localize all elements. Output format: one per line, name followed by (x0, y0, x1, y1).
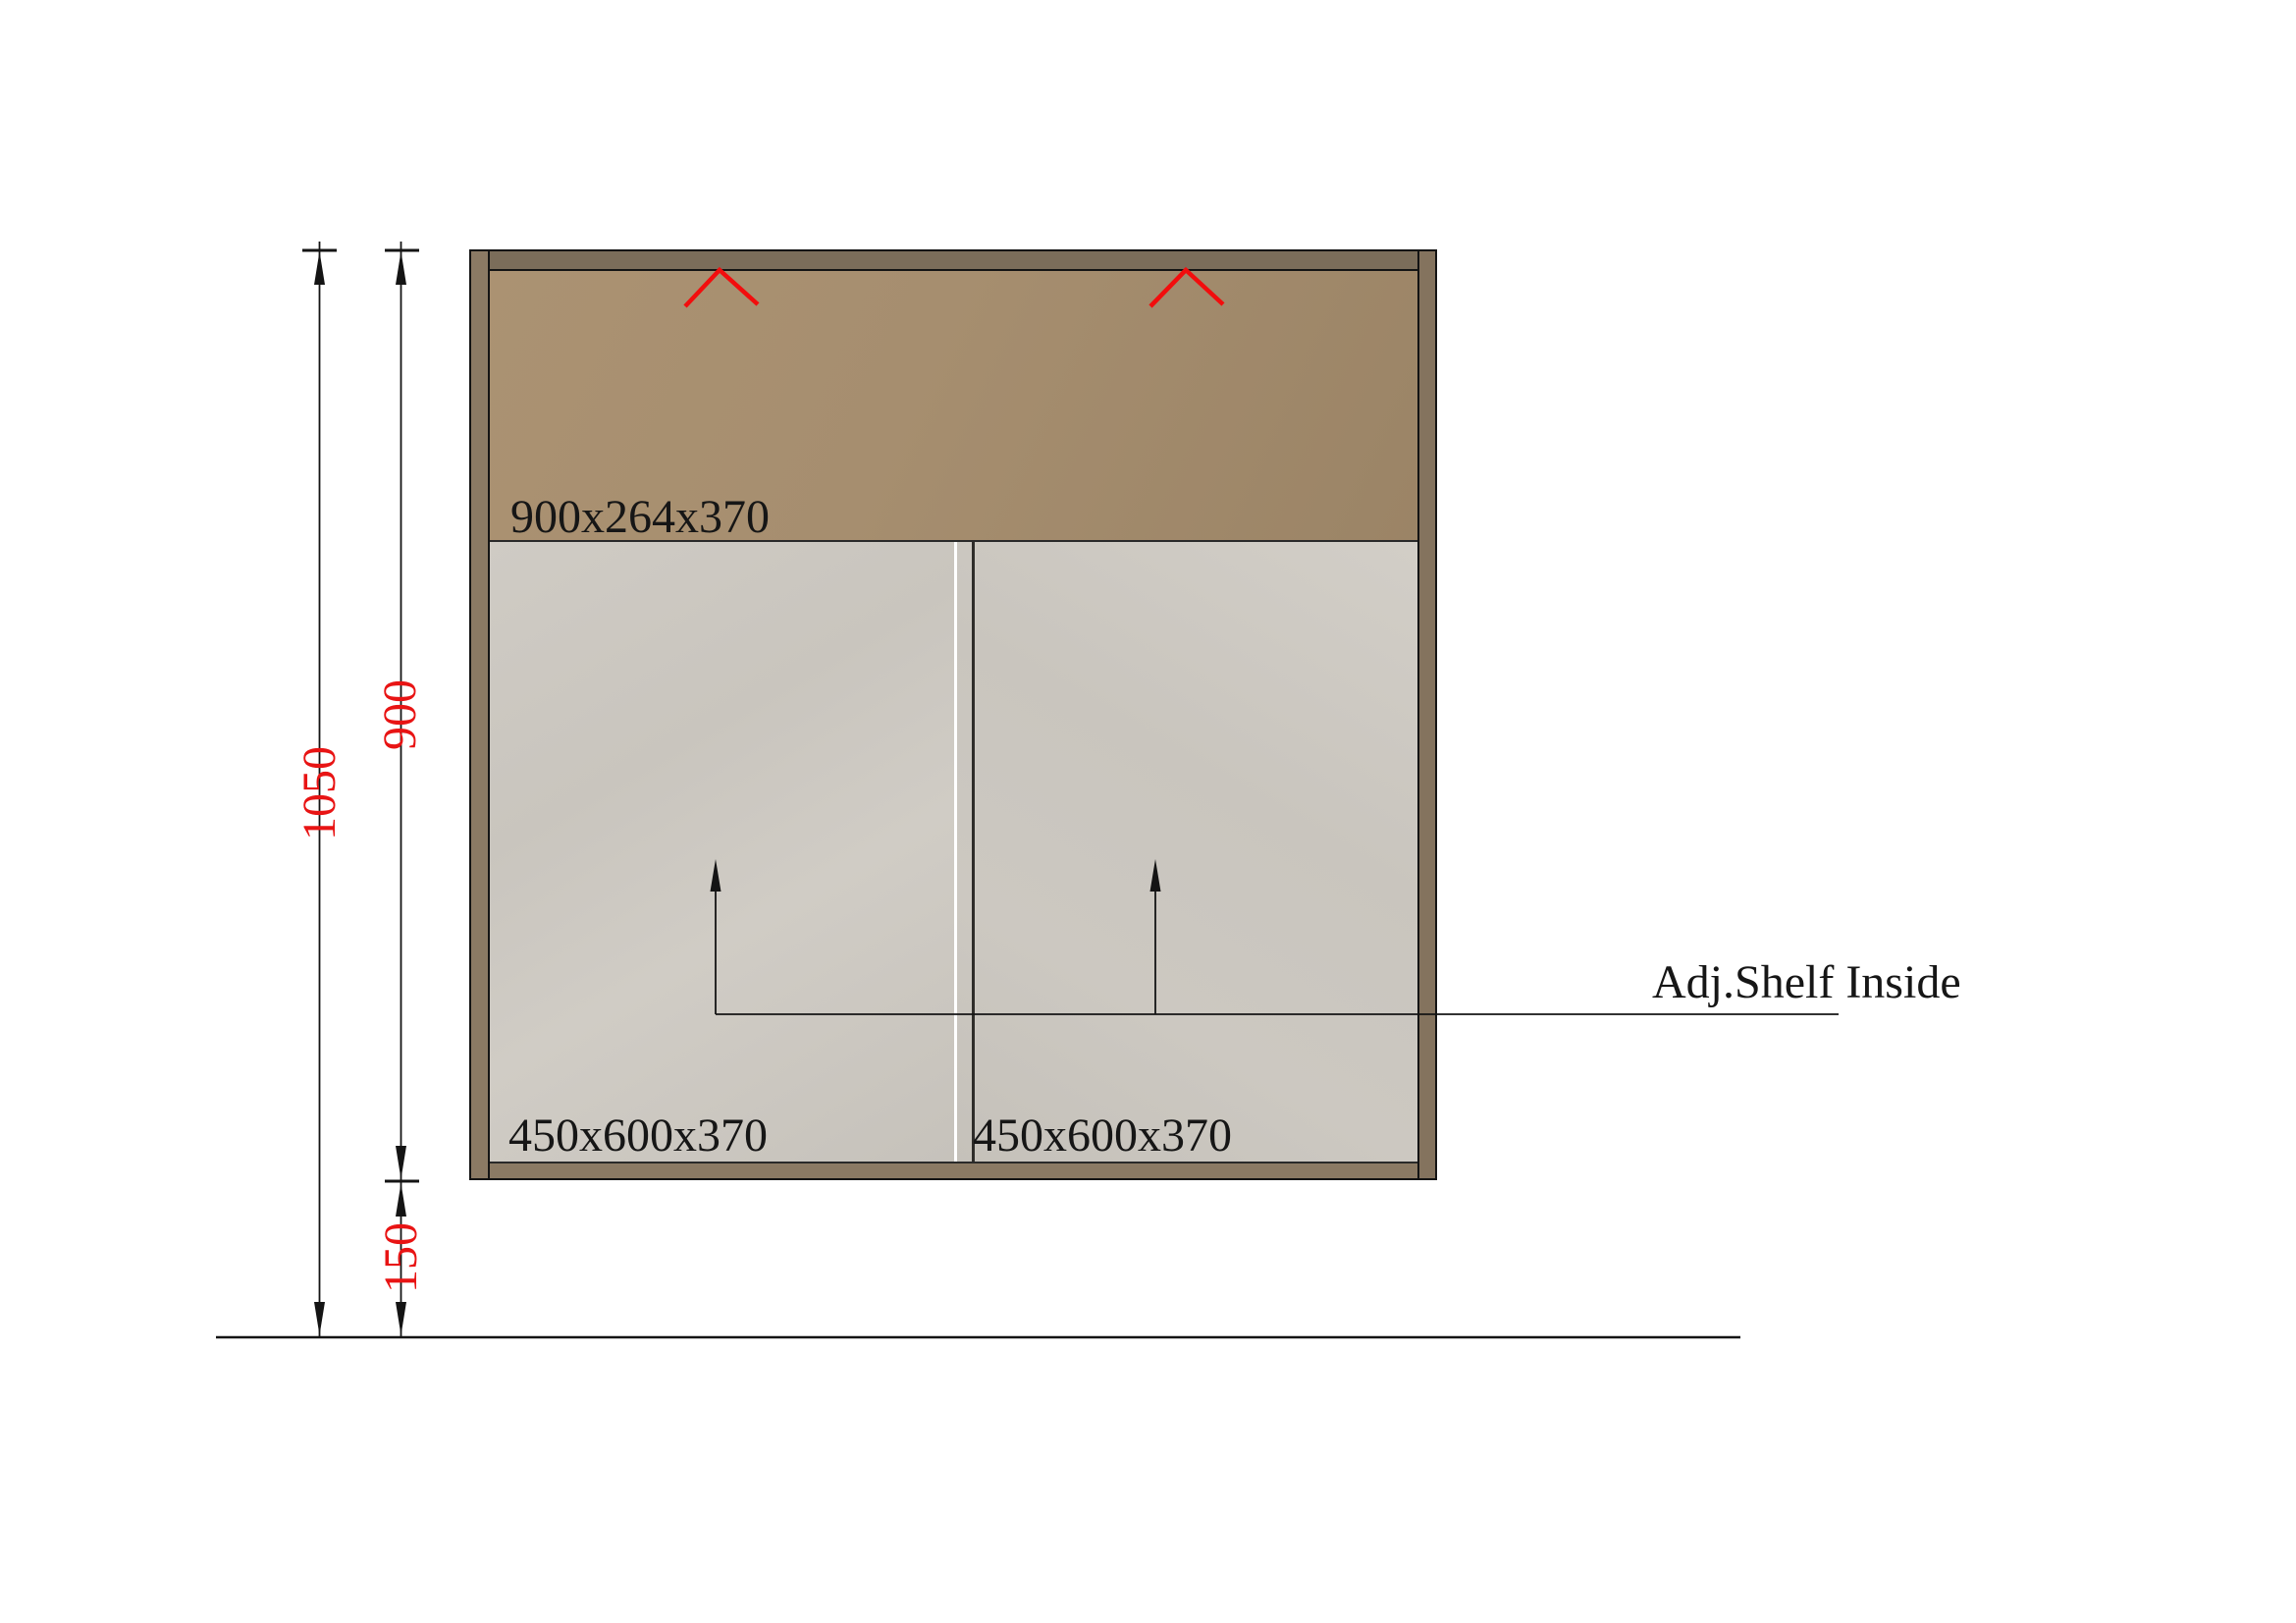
arrowhead-up-icon (1150, 859, 1161, 892)
arrowhead-down-icon (396, 1302, 406, 1335)
arrowhead-down-icon (396, 1146, 406, 1179)
arrowhead-up-icon (396, 1183, 406, 1217)
drawing-canvas: 900x264x370 450x600x370 450x600x370 Adj.… (0, 0, 2296, 1623)
arrowhead-down-icon (314, 1302, 325, 1335)
right-door-size-label: 450x600x370 (973, 1111, 1232, 1161)
dimension-text-overall-height: 1050 (295, 746, 345, 840)
dimension-text-floor-clearance: 150 (377, 1222, 426, 1293)
door-swing-chevron-right-icon (1150, 270, 1223, 306)
arrowhead-up-icon (396, 251, 406, 285)
dimension-text-cabinet-height: 900 (376, 679, 425, 750)
shelf-note-label: Adj.Shelf Inside (1652, 958, 1961, 1007)
arrowhead-up-icon (711, 859, 721, 892)
arrowhead-up-icon (314, 251, 325, 285)
upper-section-size-label: 900x264x370 (510, 493, 770, 542)
door-swing-chevron-left-icon (685, 270, 758, 306)
left-door-size-label: 450x600x370 (508, 1111, 768, 1161)
